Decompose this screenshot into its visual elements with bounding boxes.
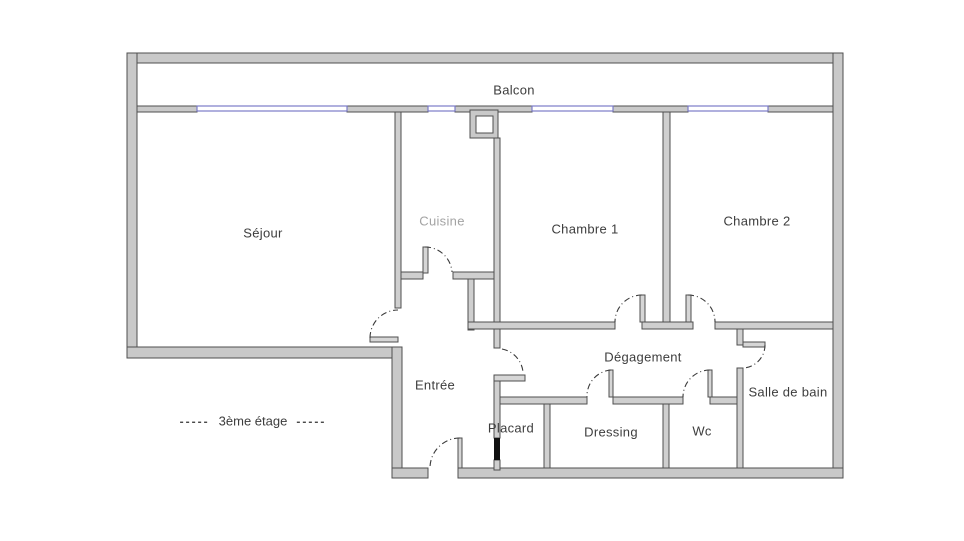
room-label-chambre2: Chambre 2 [723,214,790,229]
door-arc-entrance [430,438,460,468]
wall-right [833,53,843,478]
door-leaf-degagement [494,375,525,381]
door-leaf-dressing [609,370,613,397]
window-chambre2 [688,106,768,111]
door-arc-chambre1 [615,295,642,322]
door-leaf-cuisine [423,247,428,273]
room-label-placard: Placard [488,421,534,436]
floor-note-text: 3ème étage [219,414,288,429]
wall-chambre1-chambre2 [663,112,670,322]
room-label-degagement: Dégagement [604,350,681,365]
window-cuisine [428,106,455,111]
wall-bottom-left-of-door [392,468,428,478]
window-sejour [197,106,347,111]
door-arc-degagement [502,349,523,372]
room-label-sejour: Séjour [243,226,282,241]
floor-note-left-dashes: ----- [180,414,210,428]
floor-plan-drawing [0,0,964,541]
wall-placard-dressing [544,404,550,468]
window-chambre1 [532,106,613,111]
door-arc-cuisine [425,247,452,272]
door-leaf-chambre1 [640,295,645,322]
floor-note: ----- 3ème étage ----- [180,414,327,429]
door-leaf-sejour [370,337,398,342]
wall-dressing-wc [663,404,669,468]
room-label-chambre1: Chambre 1 [551,222,618,237]
placard-door-black [494,438,500,460]
door-leaf-bathroom [743,342,765,347]
door-arc-sejour [370,310,398,338]
door-arc-chambre2 [688,295,715,322]
room-label-wc: Wc [692,424,711,439]
interior-walls [395,112,833,470]
wall-sejour-cuisine [395,112,401,308]
door-arc-wc [683,370,710,397]
wall-entree-west [392,347,402,478]
room-label-cuisine: Cuisine [419,214,464,229]
room-label-balcon: Balcon [493,83,535,98]
room-label-salle-de-bain: Salle de bain [748,385,827,400]
wall-top [127,53,843,63]
room-label-entree: Entrée [415,378,455,393]
floor-plan: Balcon Séjour Cuisine Chambre 1 Chambre … [0,0,964,541]
door-leaf-chambre2 [686,295,691,322]
door-arc-dressing [587,370,611,397]
door-leaf-wc [708,370,712,397]
floor-note-right-dashes: ----- [296,414,326,428]
duct-top [470,110,498,138]
wall-main-vertical-upper [494,138,500,348]
room-label-dressing: Dressing [584,425,638,440]
wall-left [127,53,137,358]
door-arc-bathroom [743,345,765,368]
wall-bottom-right-of-door [458,468,843,478]
wall-bottom-sejour [127,347,402,358]
door-leaf-entrance [458,438,462,468]
